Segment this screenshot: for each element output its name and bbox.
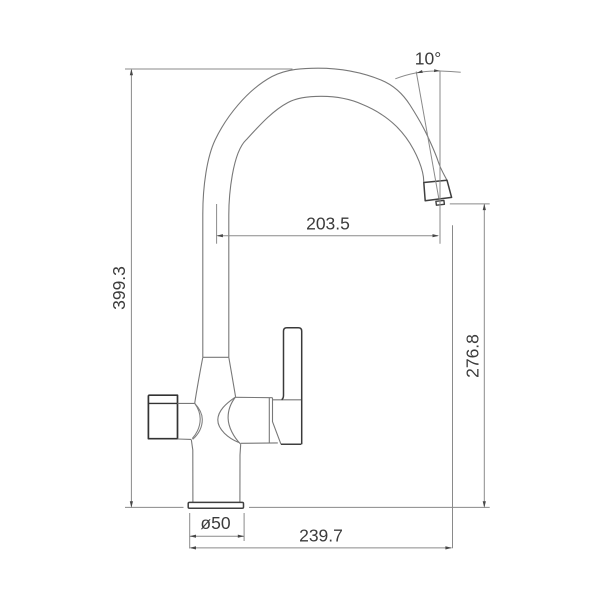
svg-text:239.7: 239.7 [299,526,343,546]
svg-text:203.5: 203.5 [306,214,350,234]
svg-text:399.3: 399.3 [109,266,129,310]
svg-text:ø50: ø50 [200,513,230,533]
svg-text:276.8: 276.8 [463,334,483,378]
svg-text:10°: 10° [415,49,441,69]
